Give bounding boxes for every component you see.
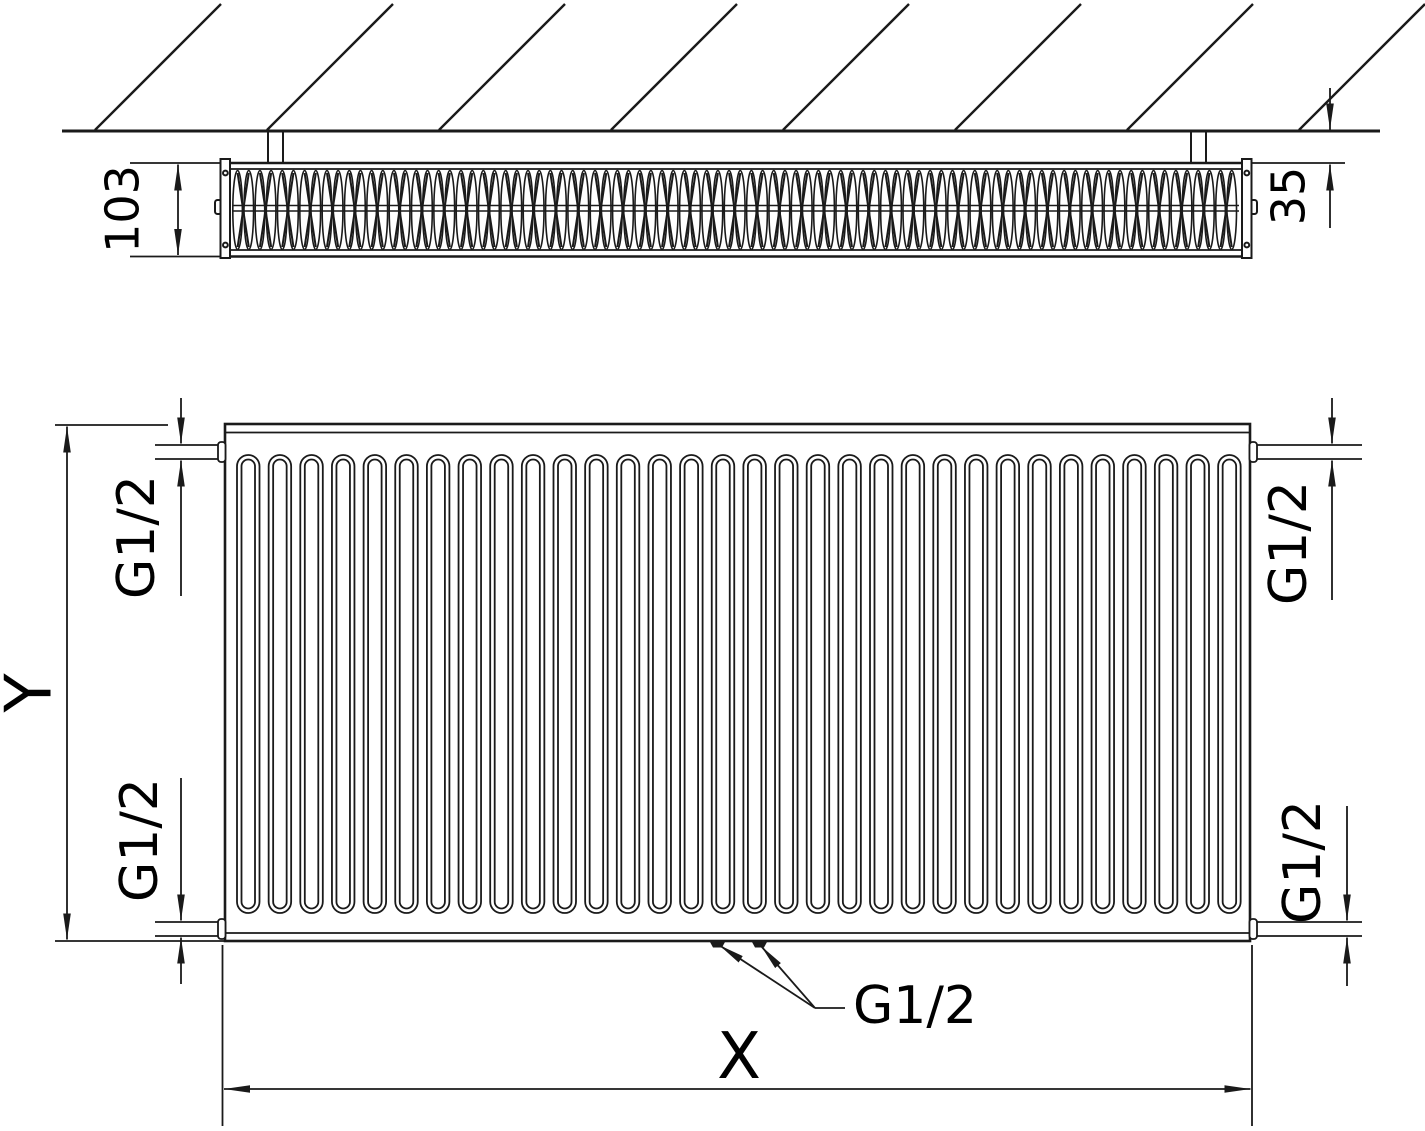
wall-section bbox=[62, 4, 1425, 162]
connection-stub-bottom-left bbox=[155, 919, 226, 939]
height-axis-label: Y bbox=[0, 673, 67, 714]
width-axis-label: X bbox=[717, 1020, 761, 1094]
top-view-end-cap-right bbox=[1242, 159, 1257, 258]
radiator-drawing-canvas: 103 35 bbox=[0, 0, 1425, 1131]
wall-clearance-dimension-label: 35 bbox=[1262, 167, 1316, 226]
connection-stub-top-left bbox=[155, 442, 226, 462]
dimension-width-x: X bbox=[223, 945, 1253, 1126]
leader-line bbox=[719, 945, 815, 1008]
connection-stub-top-right bbox=[1250, 442, 1363, 462]
thread-label-top-right: G1/2 bbox=[1259, 481, 1319, 605]
convector-fin-pattern bbox=[233, 171, 1239, 250]
bottom-connection-nipples bbox=[710, 942, 767, 948]
wall-bracket-right bbox=[1191, 131, 1206, 162]
dimension-g12-bottom-right: G1/2 bbox=[1273, 800, 1347, 986]
radiator-top-view bbox=[215, 159, 1257, 258]
dimension-g12-top-left: G1/2 bbox=[107, 398, 181, 599]
thread-label-bottom-center: G1/2 bbox=[853, 976, 977, 1036]
radiator-front-view bbox=[155, 424, 1362, 948]
wall-bracket-left bbox=[268, 131, 283, 162]
thread-label-bottom-left: G1/2 bbox=[110, 778, 170, 902]
thread-label-bottom-right: G1/2 bbox=[1273, 800, 1333, 924]
thread-label-top-left: G1/2 bbox=[107, 475, 167, 599]
dimension-wall-clearance-35: 35 bbox=[1251, 88, 1345, 228]
technical-drawing-page: 103 35 bbox=[0, 0, 1425, 1131]
depth-dimension-label: 103 bbox=[96, 165, 150, 253]
dimension-depth-103: 103 bbox=[96, 163, 222, 257]
dimension-g12-bottom-left: G1/2 bbox=[110, 778, 181, 984]
dimension-g12-top-right: G1/2 bbox=[1259, 398, 1332, 605]
top-view-end-cap-left bbox=[215, 159, 230, 258]
front-panel-grooves bbox=[237, 455, 1241, 913]
wall-hatch-lines bbox=[95, 4, 1425, 130]
